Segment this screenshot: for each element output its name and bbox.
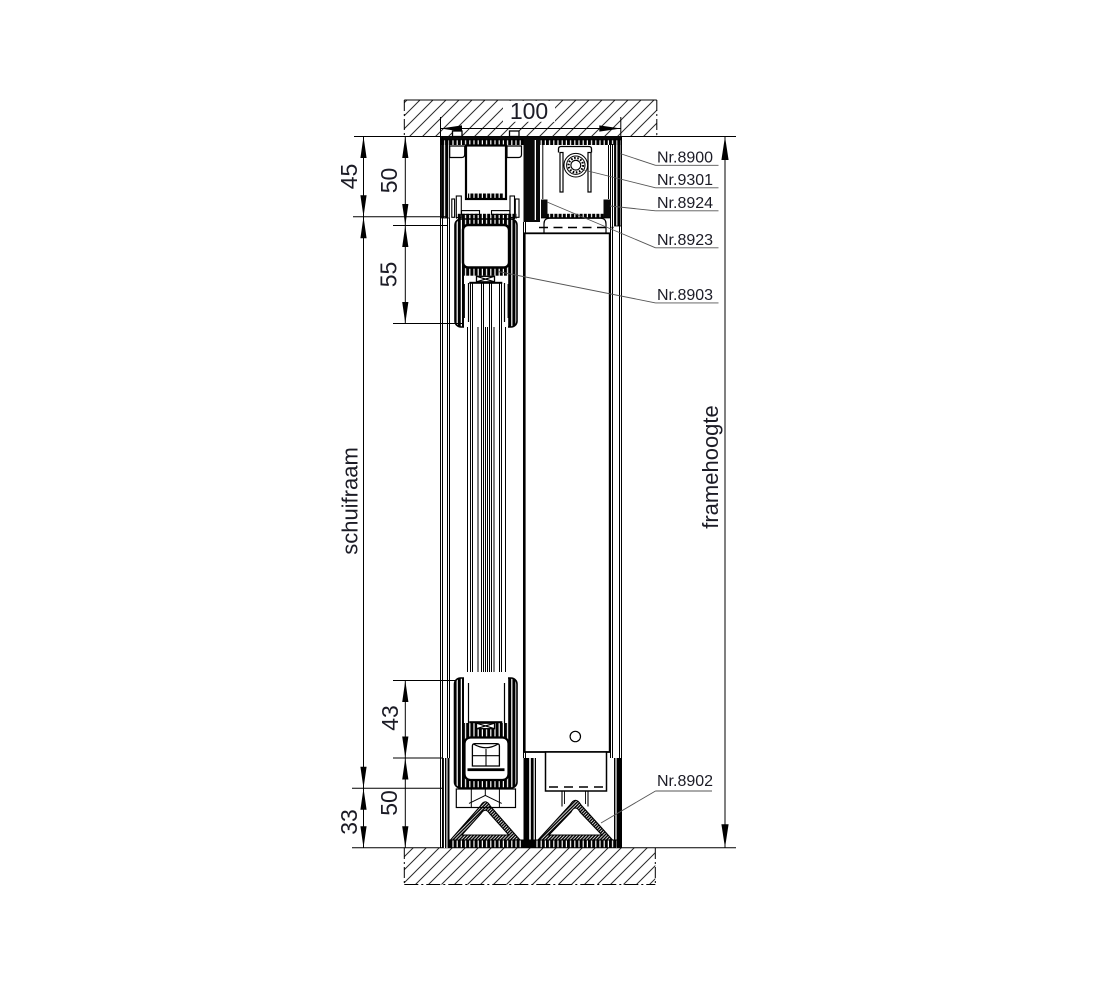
svg-text:33: 33 xyxy=(336,809,362,835)
svg-text:50: 50 xyxy=(376,790,402,816)
svg-text:schuifraam: schuifraam xyxy=(338,447,363,555)
svg-text:framehoogte: framehoogte xyxy=(698,405,723,529)
svg-text:43: 43 xyxy=(377,705,403,731)
svg-text:Nr.8924: Nr.8924 xyxy=(657,195,713,212)
svg-text:45: 45 xyxy=(336,164,362,190)
svg-text:Nr.8903: Nr.8903 xyxy=(657,287,713,304)
svg-text:50: 50 xyxy=(376,168,402,194)
svg-text:100: 100 xyxy=(510,98,548,124)
svg-text:55: 55 xyxy=(376,262,402,288)
svg-text:Nr.8900: Nr.8900 xyxy=(657,150,713,167)
svg-text:Nr.8923: Nr.8923 xyxy=(657,232,713,249)
svg-text:Nr.9301: Nr.9301 xyxy=(657,172,713,189)
svg-text:Nr.8902: Nr.8902 xyxy=(657,773,713,790)
